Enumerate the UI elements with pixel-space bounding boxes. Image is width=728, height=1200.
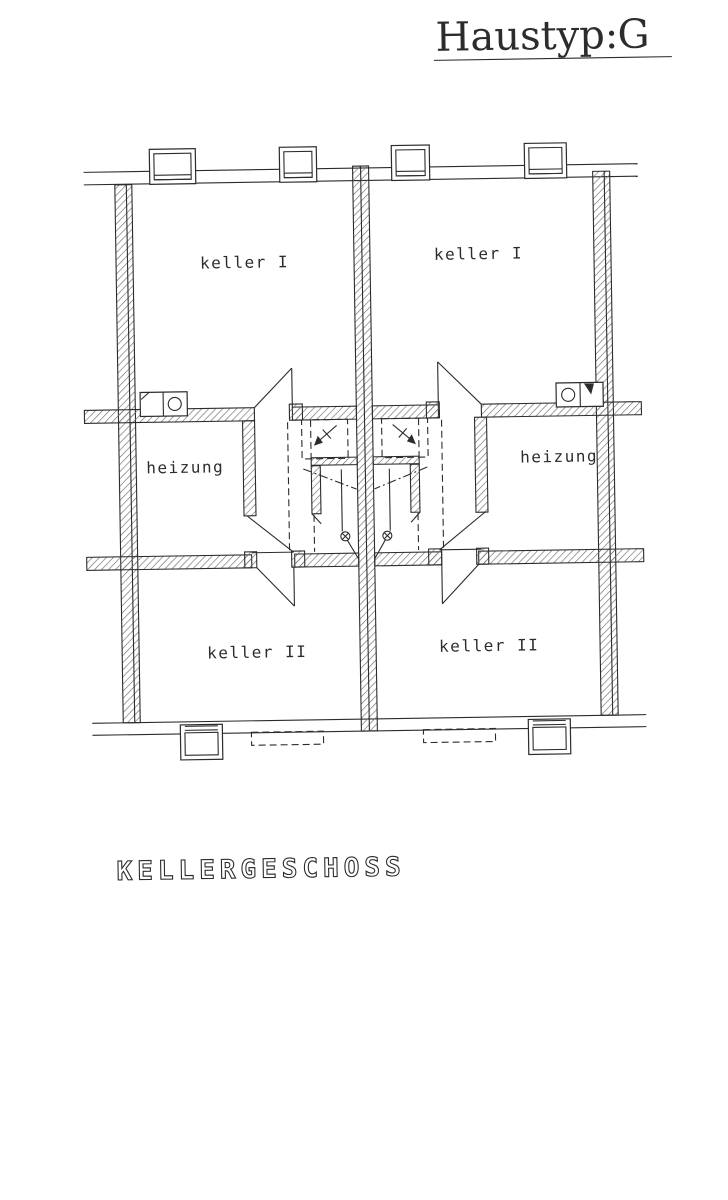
light-well	[391, 145, 430, 181]
stairwell-wall-right	[410, 464, 420, 512]
light-well	[180, 724, 223, 760]
dashed-pit-right	[423, 728, 495, 742]
door-keller1-right	[438, 361, 482, 405]
light-well	[279, 147, 317, 183]
title-block: Haustyp: G	[433, 11, 672, 61]
room-label-keller1-right: keller I	[434, 243, 523, 263]
stairwell-wall-left	[311, 466, 321, 514]
stair-direction-arrow-icon	[314, 436, 323, 446]
light-well	[528, 719, 571, 755]
room-label-heizung-left: heizung	[146, 457, 224, 477]
scanned-floor-plan-sheet: Haustyp: G	[0, 0, 728, 1200]
floor-plan-drawing: Haustyp: G	[0, 0, 728, 1200]
door-keller1-left	[254, 368, 293, 408]
dashed-pit-left	[251, 731, 323, 745]
light-well	[149, 149, 196, 185]
light-well	[524, 143, 567, 179]
sheet-title-house-type: G	[617, 11, 650, 57]
door-keller2-left	[257, 567, 295, 607]
staircase-right	[373, 418, 444, 559]
chimney-right	[556, 382, 603, 407]
staircase-left	[288, 419, 359, 560]
sheet-title: Haustyp:	[435, 12, 618, 61]
chimney-left	[140, 392, 187, 417]
door-heizung-left	[247, 515, 294, 553]
heizung-wall-left-unit	[243, 421, 256, 516]
door-heizung-right	[439, 512, 486, 550]
floor-caption: KELLERGESCHOSS	[116, 852, 406, 887]
room-label-keller2-right: keller II	[439, 635, 539, 656]
stair-direction-arrow-icon	[407, 434, 416, 444]
room-label-keller1-left: keller I	[200, 252, 289, 272]
door-keller2-right	[442, 564, 480, 604]
room-label-keller2-left: keller II	[207, 642, 307, 663]
heizung-wall-right-unit	[474, 417, 487, 512]
room-label-heizung-right: heizung	[520, 446, 598, 466]
